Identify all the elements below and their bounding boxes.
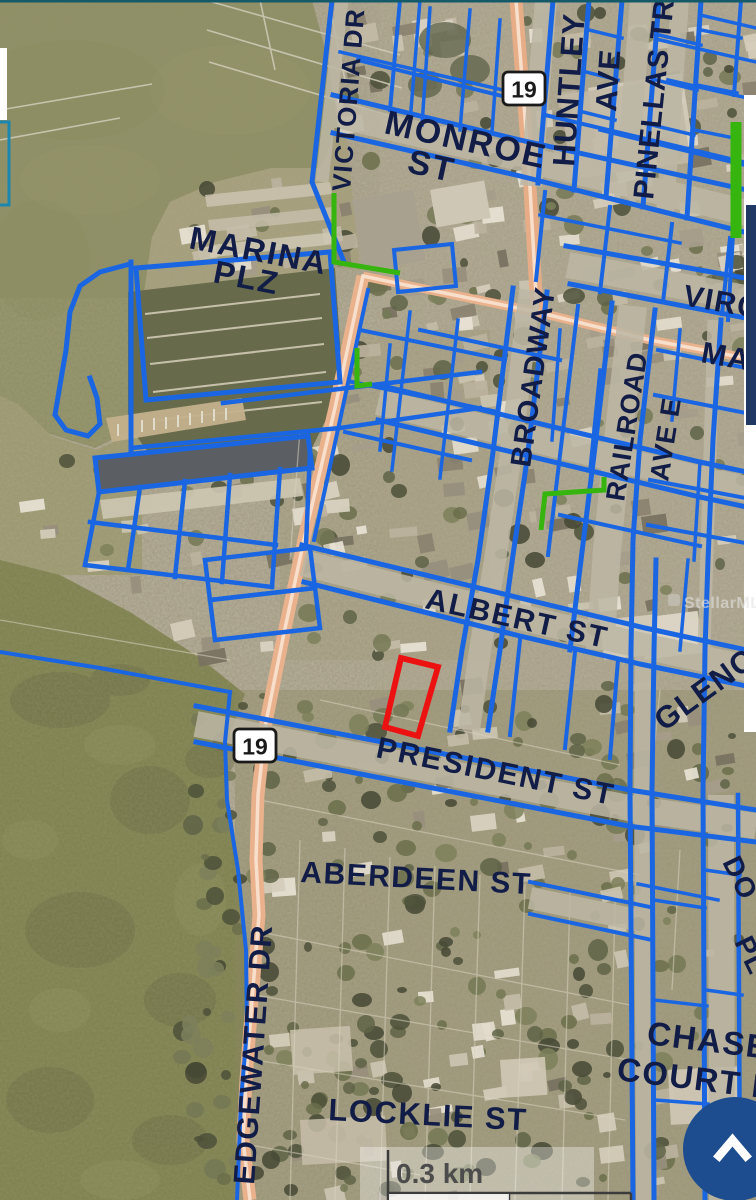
svg-text:19: 19	[511, 77, 537, 103]
svg-text:StellarMLS: StellarMLS	[684, 595, 756, 612]
svg-text:19: 19	[242, 734, 268, 760]
svg-text:0.3 km: 0.3 km	[396, 1158, 483, 1189]
svg-text:AVE: AVE	[590, 48, 627, 113]
